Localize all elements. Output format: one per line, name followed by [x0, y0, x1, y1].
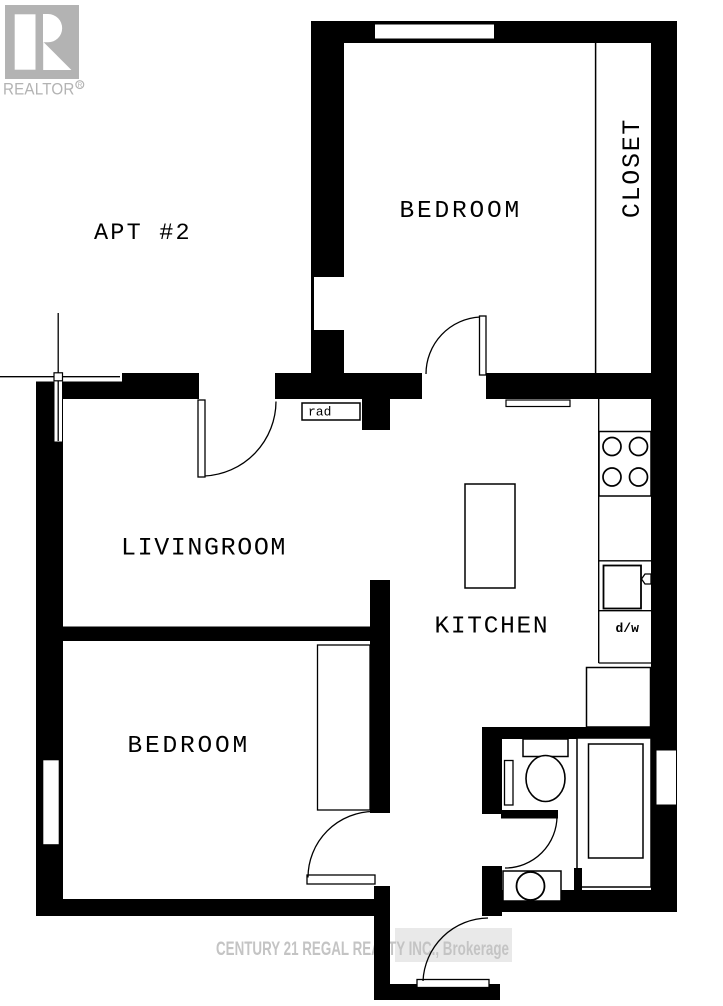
svg-text:BEDROOM: BEDROOM [128, 733, 251, 760]
svg-text:KITCHEN: KITCHEN [435, 614, 550, 641]
svg-text:REALTOR: REALTOR [3, 79, 75, 98]
svg-text:APT #2: APT #2 [94, 220, 192, 247]
svg-text:BEDROOM: BEDROOM [400, 198, 523, 225]
svg-text:d/w: d/w [616, 621, 640, 636]
svg-text:CLOSET: CLOSET [618, 118, 647, 218]
svg-text:LIVINGROOM: LIVINGROOM [121, 534, 287, 563]
svg-text:rad: rad [308, 405, 331, 420]
svg-text:R: R [78, 82, 83, 89]
svg-text:CENTURY 21 REGAL REALTY INC.,: CENTURY 21 REGAL REALTY INC., Brokerage [216, 939, 509, 960]
